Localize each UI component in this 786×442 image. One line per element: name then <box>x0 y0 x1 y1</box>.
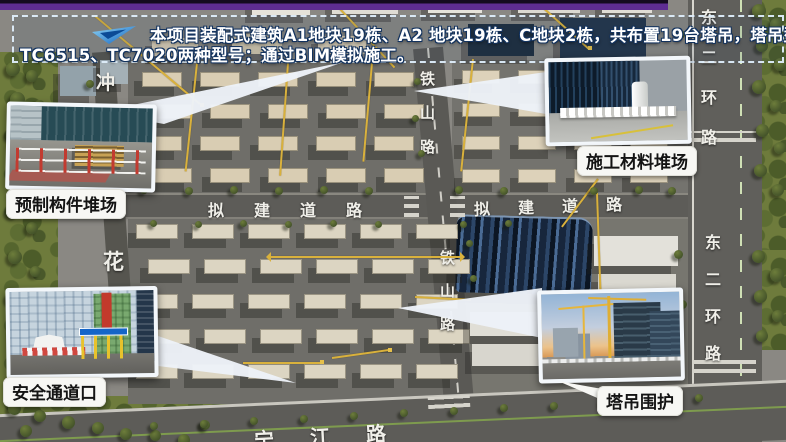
road-label-tieshan-1: 铁山路 <box>420 62 435 164</box>
building <box>304 224 346 239</box>
tree <box>6 62 20 76</box>
tree <box>752 250 765 263</box>
building <box>192 294 234 309</box>
building-slab <box>594 236 678 266</box>
crosswalk <box>450 196 465 217</box>
building <box>360 364 402 379</box>
site-ground-lower <box>128 218 462 404</box>
building <box>316 259 358 274</box>
red-hoist <box>102 292 113 327</box>
canopy-posts <box>81 335 127 359</box>
tree <box>450 407 458 415</box>
building <box>258 72 298 87</box>
building <box>210 104 250 119</box>
tree <box>365 187 373 195</box>
arrowhead-right <box>460 252 470 262</box>
site-plan-slide: 拟建道路 拟建道路 铁山路 铁山路 东二环路 东二环路 花 冲 宁江路 本项目装… <box>0 0 786 442</box>
tree <box>772 184 784 196</box>
tree <box>414 78 421 85</box>
tree <box>754 164 767 177</box>
crane-jib-line <box>243 362 320 364</box>
label-precast-yard: 预制构件堆场 <box>6 189 126 219</box>
tree <box>185 187 193 195</box>
far-towers <box>553 328 578 357</box>
tree <box>770 268 784 282</box>
tree <box>754 290 767 303</box>
tree <box>668 187 676 195</box>
building <box>192 364 234 379</box>
ring-road-edge-line <box>692 0 694 442</box>
building <box>248 364 290 379</box>
building <box>326 168 366 183</box>
building <box>152 104 192 119</box>
tree <box>500 187 508 195</box>
tree <box>150 430 161 441</box>
backdrop-building-light <box>10 106 42 140</box>
tree <box>505 220 512 227</box>
tree <box>635 186 643 194</box>
tree <box>230 186 238 194</box>
tree <box>250 417 258 425</box>
building <box>384 168 424 183</box>
arrowhead-left <box>261 252 271 262</box>
crane-jib-line <box>270 256 462 258</box>
tree <box>375 221 382 228</box>
blue-glass-building <box>455 214 593 296</box>
building <box>316 329 358 344</box>
tree <box>86 80 94 88</box>
crosswalk <box>690 131 756 142</box>
tree <box>460 221 467 228</box>
building <box>268 168 308 183</box>
tree <box>466 240 473 247</box>
inset-material-yard <box>544 56 692 147</box>
building <box>148 259 190 274</box>
building <box>260 329 302 344</box>
tree <box>350 412 358 420</box>
tree <box>92 422 104 434</box>
tree <box>500 404 508 412</box>
inset-crane-enclosure <box>537 287 685 383</box>
inset-image-crane-enclosure <box>541 292 681 380</box>
tree <box>275 187 283 195</box>
inset-precast-yard <box>5 101 157 192</box>
banner-line-2: TC6515、TC7020两种型号；通过BIM模拟施工。 <box>20 42 414 66</box>
building <box>416 364 458 379</box>
striped-posts <box>15 147 146 174</box>
tree <box>752 80 766 94</box>
building <box>248 294 290 309</box>
building <box>200 136 240 151</box>
tree <box>455 186 463 194</box>
tree <box>695 394 703 402</box>
tree <box>150 220 157 227</box>
tree <box>200 420 208 428</box>
tree <box>774 142 786 154</box>
building <box>248 224 290 239</box>
building <box>416 224 458 239</box>
crane-marker <box>320 360 324 364</box>
tree <box>330 220 337 227</box>
ring-road-lane-line <box>740 0 742 442</box>
tree <box>756 124 769 137</box>
crosswalk <box>428 395 471 409</box>
building <box>326 104 366 119</box>
building <box>204 259 246 274</box>
building <box>462 136 500 150</box>
tree <box>26 222 38 234</box>
building <box>462 70 500 84</box>
striped-barriers <box>22 347 85 355</box>
inset-image-precast-yard <box>9 106 153 189</box>
top-purple-bar <box>0 0 668 10</box>
building <box>360 294 402 309</box>
tree <box>550 402 558 410</box>
label-safety-passage: 安全通道口 <box>3 377 106 407</box>
tree <box>62 416 75 429</box>
tree <box>285 221 292 228</box>
building <box>374 136 414 151</box>
building <box>316 72 356 87</box>
building <box>316 136 356 151</box>
building <box>304 294 346 309</box>
tree <box>320 186 328 194</box>
tree <box>412 115 419 122</box>
building <box>258 136 298 151</box>
building <box>210 168 250 183</box>
building <box>462 169 500 183</box>
tree <box>240 220 247 227</box>
road-east-second-ring <box>688 0 762 442</box>
dark-building-right <box>136 290 154 362</box>
building <box>372 329 414 344</box>
tree <box>400 409 408 417</box>
tree <box>770 100 782 112</box>
tree <box>8 250 22 264</box>
crosswalk <box>692 360 756 373</box>
building <box>200 72 240 87</box>
building <box>304 364 346 379</box>
tree <box>470 275 477 282</box>
building <box>518 169 556 183</box>
tree <box>590 187 598 195</box>
crane-marker <box>388 348 392 352</box>
tree <box>300 415 308 423</box>
tree <box>20 425 32 437</box>
tree <box>150 422 158 430</box>
tree <box>34 410 46 422</box>
tree <box>756 330 768 342</box>
label-material-yard: 施工材料堆场 <box>577 146 697 176</box>
inset-safety-passage <box>5 286 158 379</box>
tree <box>674 250 683 259</box>
tree <box>120 428 132 440</box>
tree <box>772 310 784 322</box>
material-fence <box>560 106 676 118</box>
building <box>372 259 414 274</box>
road-label-proposed-1: 拟建道路 <box>208 197 392 221</box>
road-label-chong: 冲 <box>96 68 115 95</box>
crosswalk <box>404 196 419 217</box>
crane-marker <box>200 103 204 107</box>
tree <box>26 70 38 82</box>
tree <box>178 434 190 442</box>
inset-image-safety-passage <box>9 290 154 375</box>
road-label-hua: 花 <box>103 246 124 276</box>
glass-building-mid <box>649 310 680 357</box>
building <box>374 72 414 87</box>
tree <box>195 221 202 228</box>
building <box>268 104 308 119</box>
tree <box>30 266 41 277</box>
tree <box>418 150 425 157</box>
building <box>136 224 178 239</box>
building <box>204 329 246 344</box>
inset-image-material-yard <box>548 60 687 142</box>
ground <box>543 360 681 379</box>
label-crane-enclosure: 塔吊围护 <box>597 386 683 416</box>
road-label-ring-2: 东二环路 <box>705 224 721 372</box>
